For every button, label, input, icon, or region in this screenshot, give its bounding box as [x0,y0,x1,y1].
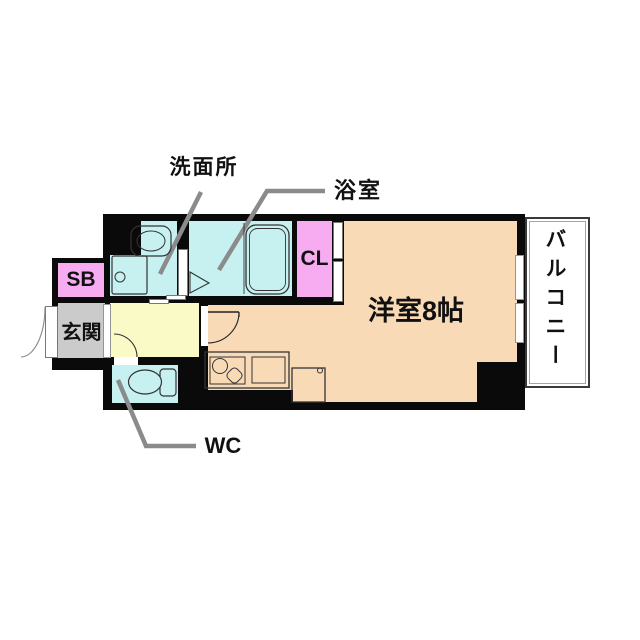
window-lower [515,303,524,343]
window-upper [515,255,524,300]
closet-door-panel-upper [333,222,343,259]
wc-door-opening [114,357,138,365]
washroom-sliding-door-panel-left [149,299,169,304]
hallway-area [110,303,199,357]
washroom-area-lower [110,255,177,296]
shoe-box-area: SB [58,263,104,297]
closet-area: CL [297,221,332,297]
floor-plan: CL SB 玄関 バルコニー [0,0,640,640]
washroom-label: 洗面所 [156,156,252,179]
bathroom-area [189,221,292,296]
shoe-box-label: SB [66,268,95,292]
entrance-door-swing [21,307,45,357]
room-door-opening [201,306,208,346]
main-room-label: 洋室8帖 [350,297,482,327]
main-room-area-bottom [293,390,477,402]
wc-label: WC [198,434,248,458]
entrance-area: 玄関 [58,303,105,358]
entrance-step-strip [103,304,111,358]
bathroom-door-gap [178,249,188,296]
bathroom-label: 浴室 [330,179,386,203]
balcony-area: バルコニー [525,217,590,388]
washroom-sliding-door-panel-right [166,295,186,300]
entrance-label: 玄関 [62,316,102,345]
balcony-label: バルコニー [539,228,569,373]
entrance-door-leaf [45,306,58,358]
wc-area [112,365,178,403]
closet-label: CL [301,247,329,271]
closet-door-panel-lower [333,261,343,302]
